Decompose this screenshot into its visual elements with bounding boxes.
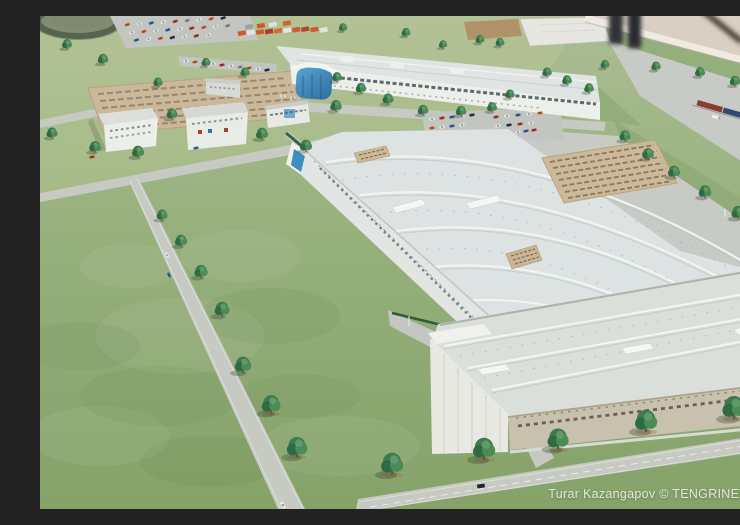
car <box>290 97 295 100</box>
blurred-background-object <box>609 16 623 44</box>
blurred-background-object <box>628 16 641 48</box>
scale-model-photograph: Turar Kazangapov © TENGRINEWS <box>40 16 740 509</box>
office-building-2 <box>182 102 248 150</box>
watermark-credit: Turar Kazangapov © TENGRINEWS <box>548 487 740 501</box>
model-scene <box>40 16 740 509</box>
car <box>280 95 285 98</box>
